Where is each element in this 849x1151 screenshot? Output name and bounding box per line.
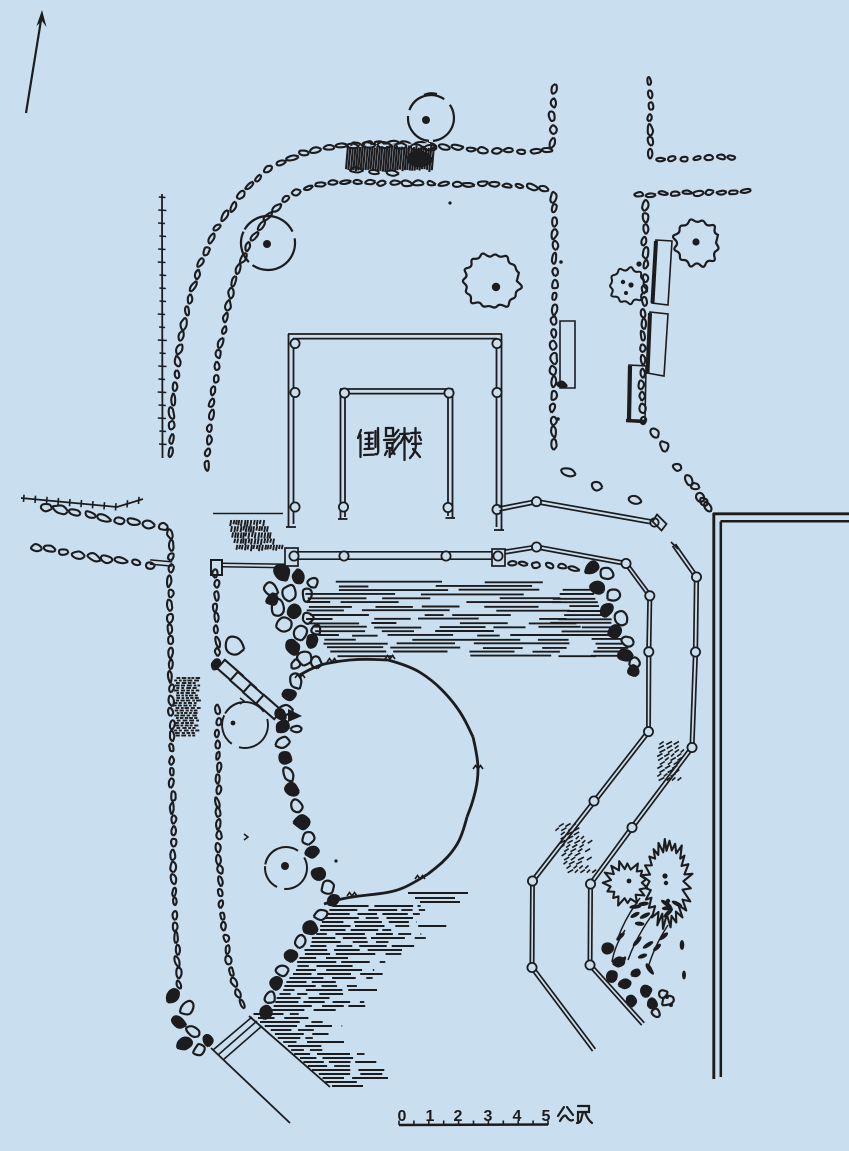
- svg-text:1: 1: [426, 1108, 435, 1125]
- svg-text:0: 0: [398, 1108, 407, 1125]
- svg-text:5: 5: [542, 1108, 551, 1125]
- svg-text:4: 4: [513, 1108, 522, 1125]
- svg-text:3: 3: [484, 1108, 493, 1125]
- svg-text:2: 2: [454, 1108, 463, 1125]
